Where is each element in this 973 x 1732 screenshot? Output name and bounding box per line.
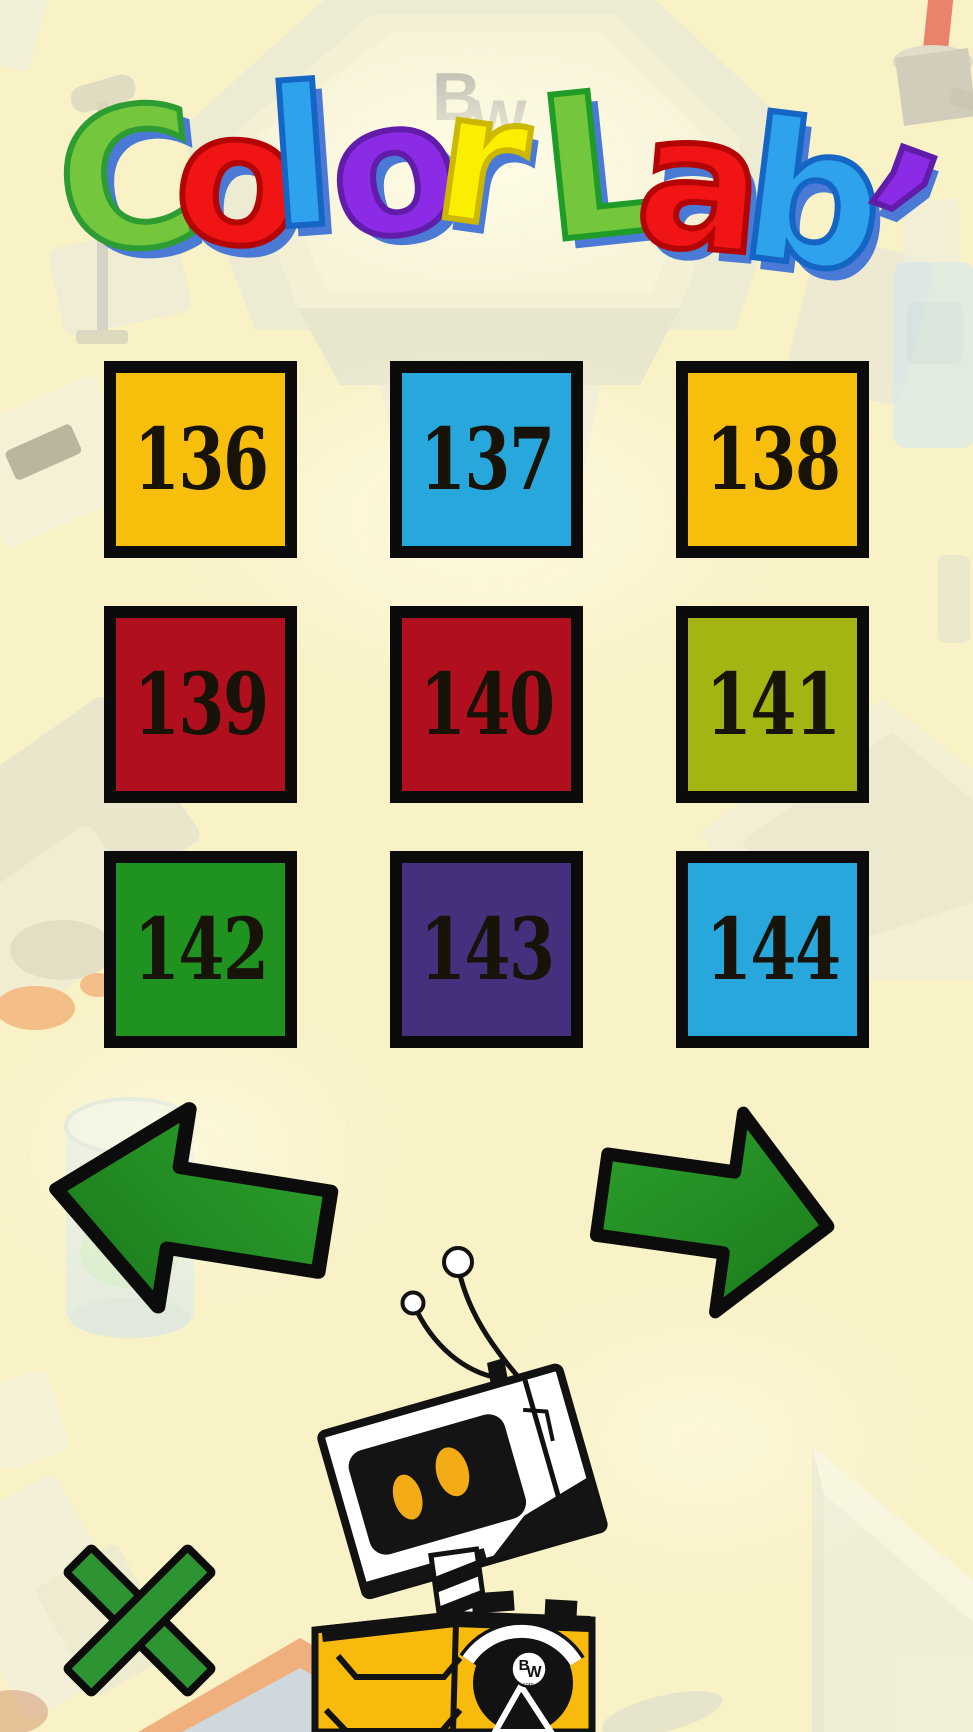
level-tile-138[interactable]: 138 bbox=[676, 361, 869, 558]
tile-label: 140 bbox=[420, 655, 554, 755]
tile-label: 142 bbox=[134, 900, 268, 1000]
tile-label: 143 bbox=[420, 900, 554, 1000]
svg-text:W: W bbox=[526, 1664, 542, 1681]
level-tile-137[interactable]: 137 bbox=[390, 361, 583, 558]
tile-label: 144 bbox=[706, 900, 840, 1000]
robot-body: B W corp. bbox=[315, 1591, 592, 1732]
tile-label: 136 bbox=[134, 410, 268, 510]
level-grid: 136 137 138 139 140 141 142 143 144 bbox=[104, 361, 869, 1048]
tile-label: 137 bbox=[420, 410, 554, 510]
level-tile-141[interactable]: 141 bbox=[676, 606, 869, 803]
antenna-ball-small bbox=[403, 1293, 424, 1314]
svg-text:corp.: corp. bbox=[523, 1682, 536, 1688]
level-tile-136[interactable]: 136 bbox=[104, 361, 297, 558]
small-tube bbox=[938, 555, 970, 643]
tile-label: 139 bbox=[134, 655, 268, 755]
robot-mascot: B W corp. bbox=[0, 1230, 973, 1732]
antenna-ball-large bbox=[444, 1248, 472, 1276]
level-tile-144[interactable]: 144 bbox=[676, 851, 869, 1048]
tile-label: 141 bbox=[706, 655, 840, 755]
level-tile-139[interactable]: 139 bbox=[104, 606, 297, 803]
game-screen: B W p. bbox=[0, 0, 973, 1732]
level-tile-140[interactable]: 140 bbox=[390, 606, 583, 803]
tile-label: 138 bbox=[706, 410, 840, 510]
level-tile-143[interactable]: 143 bbox=[390, 851, 583, 1048]
level-tile-142[interactable]: 142 bbox=[104, 851, 297, 1048]
game-title: C o l o r L a b ’ bbox=[0, 0, 973, 300]
